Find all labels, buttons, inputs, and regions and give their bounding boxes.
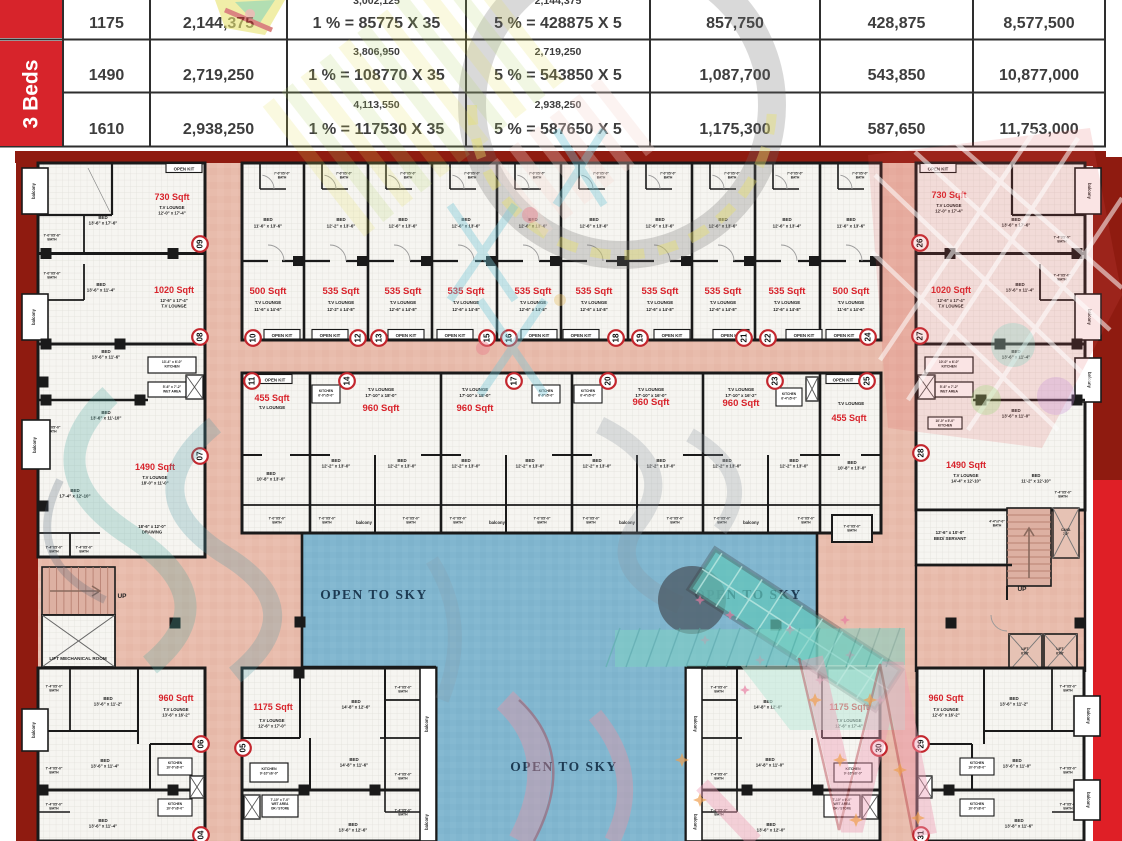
svg-text:535 Sqft: 535 Sqft [323, 286, 361, 297]
svg-text:04: 04 [197, 830, 206, 839]
svg-text:T.V LOUNGE: T.V LOUNGE [142, 475, 167, 480]
svg-text:18'-0" x 11'-0": 18'-0" x 11'-0" [141, 480, 168, 485]
svg-text:960 Sqft: 960 Sqft [723, 398, 761, 409]
svg-text:KITCHEN: KITCHEN [970, 761, 985, 765]
svg-text:T.V LOUNGE: T.V LOUNGE [163, 707, 188, 712]
svg-text:BATH: BATH [49, 770, 59, 774]
svg-text:24: 24 [864, 332, 873, 341]
svg-text:balcony: balcony [32, 436, 37, 452]
svg-text:BATH: BATH [272, 520, 282, 524]
svg-text:18'-6" x 12'-0": 18'-6" x 12'-0" [138, 524, 165, 529]
svg-text:BED: BED [789, 458, 798, 463]
svg-text:UP: UP [117, 593, 127, 600]
svg-text:17'-10" x 18'-0": 17'-10" x 18'-0" [365, 393, 396, 398]
svg-text:KITCHEN: KITCHEN [261, 767, 277, 771]
svg-text:T.V LOUNGE: T.V LOUNGE [259, 718, 284, 723]
svg-text:T.V LOUNGE: T.V LOUNGE [453, 300, 479, 305]
svg-text:BATH: BATH [398, 689, 408, 693]
svg-text:15: 15 [483, 333, 492, 342]
svg-text:T.V LOUNGE: T.V LOUNGE [328, 300, 354, 305]
svg-text:WET AREA: WET AREA [163, 390, 182, 394]
svg-text:BED: BED [461, 458, 470, 463]
svg-text:balcony: balcony [693, 814, 698, 830]
svg-text:12'-2" x 13'-0": 12'-2" x 13'-0" [780, 463, 809, 468]
svg-text:BATH: BATH [79, 549, 89, 553]
svg-text:11'-6" x 14'-6": 11'-6" x 14'-6" [837, 307, 864, 312]
svg-text:6'X8': 6'X8' [1021, 651, 1029, 655]
svg-text:12'-6" x 10'-0": 12'-6" x 10'-0" [936, 530, 965, 535]
svg-text:13'-6" x 11'-6": 13'-6" x 11'-6" [92, 354, 120, 359]
svg-text:12'-6" x 13'-6": 12'-6" x 13'-6" [580, 223, 609, 228]
svg-text:960 Sqft: 960 Sqft [633, 397, 671, 408]
svg-text:balcony: balcony [693, 716, 698, 732]
svg-text:T.V LOUNGE: T.V LOUNGE [647, 300, 673, 305]
svg-text:balcony: balcony [1086, 708, 1091, 724]
svg-text:OPEN KIT: OPEN KIT [174, 166, 195, 171]
svg-text:BATH: BATH [791, 175, 800, 179]
svg-text:12'-6" x 14'-8": 12'-6" x 14'-8" [773, 307, 800, 312]
svg-text:OPEN KIT: OPEN KIT [396, 333, 417, 338]
svg-text:500 Sqft: 500 Sqft [250, 286, 288, 297]
svg-text:12'-2" x 13'-0": 12'-2" x 13'-0" [388, 463, 417, 468]
svg-text:12'-6" x 14'-8": 12'-6" x 14'-8" [646, 307, 673, 312]
svg-text:05: 05 [239, 743, 248, 752]
svg-text:T.V LOUNGE: T.V LOUNGE [161, 303, 186, 308]
svg-text:BED: BED [847, 460, 856, 465]
svg-text:7-0": 7-0" [1063, 532, 1070, 536]
svg-text:BATH: BATH [856, 175, 865, 179]
svg-text:BED: BED [592, 458, 601, 463]
svg-text:12'-6" x 14'-8": 12'-6" x 14'-8" [709, 307, 736, 312]
svg-text:6'X8': 6'X8' [1056, 651, 1064, 655]
svg-text:BED: BED [336, 217, 345, 222]
svg-text:BED: BED [351, 699, 360, 704]
svg-text:12'-6" x 14'-8": 12'-6" x 14'-8" [452, 307, 479, 312]
svg-text:17'-10" x 18'-0": 17'-10" x 18'-0" [459, 393, 490, 398]
svg-text:BED: BED [655, 217, 664, 222]
svg-text:T.V LOUNGE: T.V LOUNGE [259, 405, 285, 410]
svg-text:UP: UP [1017, 586, 1027, 593]
svg-text:455 Sqft: 455 Sqft [254, 393, 289, 403]
svg-text:LIFT MECHANICAL ROOM: LIFT MECHANICAL ROOM [49, 656, 107, 661]
svg-text:KITCHEN: KITCHEN [581, 389, 596, 393]
svg-text:BED: BED [397, 458, 406, 463]
svg-text:13'-6" x 11'-4": 13'-6" x 11'-4" [87, 287, 115, 292]
svg-text:BATH: BATH [847, 528, 857, 532]
svg-text:12'-2" x 13'-0": 12'-2" x 13'-0" [583, 463, 612, 468]
svg-text:T.V LOUNGE: T.V LOUNGE [581, 300, 607, 305]
svg-text:BATH: BATH [714, 776, 724, 780]
svg-text:06: 06 [197, 739, 206, 748]
svg-text:BATH: BATH [1063, 806, 1073, 810]
svg-text:T.V LOUNGE: T.V LOUNGE [933, 707, 958, 712]
svg-text:KITCHEN: KITCHEN [319, 389, 334, 393]
svg-text:BED: BED [98, 215, 107, 220]
svg-text:12'-2" x 13'-6": 12'-2" x 13'-6" [327, 223, 356, 228]
svg-text:BED: BED [263, 217, 272, 222]
svg-text:BATH: BATH [453, 520, 463, 524]
svg-text:BATH: BATH [322, 520, 332, 524]
svg-text:08: 08 [196, 332, 205, 341]
svg-text:730 Sqft: 730 Sqft [154, 192, 189, 202]
svg-text:BED/ SERVANT: BED/ SERVANT [934, 536, 967, 541]
svg-text:500 Sqft: 500 Sqft [833, 286, 871, 297]
svg-text:balcony: balcony [31, 182, 36, 198]
svg-text:OPEN KIT: OPEN KIT [571, 333, 592, 338]
svg-text:BED: BED [266, 471, 275, 476]
svg-text:T.V LOUNGE: T.V LOUNGE [255, 300, 281, 305]
svg-text:6'-4"x5'-0": 6'-4"x5'-0" [580, 393, 596, 397]
svg-text:12'-6" x 13'-4": 12'-6" x 13'-4" [773, 223, 802, 228]
svg-text:13'-6" x 11'-4": 13'-6" x 11'-4" [89, 823, 117, 828]
svg-text:14: 14 [343, 376, 352, 385]
svg-text:LIFT: LIFT [1056, 647, 1064, 651]
svg-text:13'-6" x 11'-2": 13'-6" x 11'-2" [1000, 701, 1028, 706]
svg-text:12: 12 [354, 333, 363, 342]
svg-text:11'-6" x 13'-6": 11'-6" x 13'-6" [254, 223, 282, 228]
svg-text:11'-6" x 14'-6": 11'-6" x 14'-6" [254, 307, 281, 312]
svg-text:1020 Sqft: 1020 Sqft [154, 285, 194, 295]
svg-text:1175 Sqft: 1175 Sqft [253, 702, 293, 712]
svg-text:BATH: BATH [1063, 688, 1073, 692]
svg-text:18: 18 [612, 333, 621, 342]
svg-text:OPEN KIT: OPEN KIT [272, 333, 293, 338]
svg-text:13'-4" x 6'-0": 13'-4" x 6'-0" [162, 360, 183, 364]
svg-text:BATH: BATH [670, 520, 680, 524]
svg-text:T.V LOUNGE: T.V LOUNGE [390, 300, 416, 305]
svg-text:1490 Sqft: 1490 Sqft [946, 460, 986, 470]
svg-text:T.V LOUNGE: T.V LOUNGE [159, 205, 184, 210]
svg-text:10'-0"x6'-0": 10'-0"x6'-0" [166, 806, 184, 810]
svg-text:BED: BED [331, 458, 340, 463]
svg-text:OPEN KIT: OPEN KIT [833, 377, 854, 382]
svg-text:BATH: BATH [714, 689, 724, 693]
svg-text:balcony: balcony [489, 520, 505, 525]
svg-text:13'-6" x 11'-4": 13'-6" x 11'-4" [91, 763, 119, 768]
svg-text:KITCHEN: KITCHEN [168, 802, 183, 806]
svg-text:14'-8" x 11'-6": 14'-8" x 11'-6" [340, 762, 368, 767]
svg-text:12'-6" x 17'-4": 12'-6" x 17'-4" [160, 298, 187, 303]
svg-text:BED: BED [765, 757, 774, 762]
svg-text:OPEN KIT: OPEN KIT [529, 333, 550, 338]
svg-text:960 Sqft: 960 Sqft [363, 403, 401, 414]
svg-text:960 Sqft: 960 Sqft [158, 693, 193, 703]
svg-text:T.V LOUNGE: T.V LOUNGE [638, 387, 664, 392]
svg-text:6'-0"x5'-0": 6'-0"x5'-0" [318, 393, 334, 397]
svg-text:BED: BED [1032, 473, 1041, 478]
svg-text:BATH: BATH [49, 806, 59, 810]
svg-text:LIFT: LIFT [1021, 647, 1029, 651]
svg-text:BED: BED [589, 217, 598, 222]
svg-text:13'-6" x 11'-2": 13'-6" x 11'-2" [94, 701, 122, 706]
svg-text:535 Sqft: 535 Sqft [642, 286, 680, 297]
svg-text:10'-0"x8'-0": 10'-0"x8'-0" [968, 806, 986, 810]
svg-text:13'-8" x 11'-6": 13'-8" x 11'-6" [1005, 823, 1033, 828]
svg-text:T.V LOUNGE: T.V LOUNGE [838, 300, 864, 305]
svg-text:13'-6" x 12'-6": 13'-6" x 12'-6" [339, 827, 368, 832]
svg-text:T.V LOUNGE: T.V LOUNGE [368, 387, 394, 392]
svg-text:13'-6" x 17'-6": 13'-6" x 17'-6" [89, 220, 118, 225]
svg-text:BATH: BATH [537, 520, 547, 524]
svg-text:12'-6" x 13'-6": 12'-6" x 13'-6" [389, 223, 418, 228]
svg-text:12'-2" x 13'-0": 12'-2" x 13'-0" [322, 463, 351, 468]
svg-text:balcony: balcony [356, 520, 372, 525]
svg-text:balcony: balcony [424, 813, 429, 829]
svg-text:T.V LOUNGE: T.V LOUNGE [710, 300, 736, 305]
svg-text:14'-8" x 12'-6": 14'-8" x 12'-6" [342, 704, 371, 709]
svg-text:17: 17 [510, 376, 519, 385]
svg-text:BATH: BATH [728, 175, 737, 179]
svg-text:KITCHEN: KITCHEN [164, 365, 180, 369]
svg-text:BED: BED [398, 217, 407, 222]
svg-text:BATH: BATH [406, 520, 416, 524]
svg-text:BED: BED [96, 282, 105, 287]
svg-text:BED: BED [101, 349, 110, 354]
svg-text:13: 13 [375, 333, 384, 342]
svg-text:OPEN KIT: OPEN KIT [320, 333, 341, 338]
svg-text:OPEN KIT: OPEN KIT [834, 333, 855, 338]
svg-text:14'-4" x 12'-10": 14'-4" x 12'-10" [951, 478, 981, 483]
svg-text:balcony: balcony [31, 721, 36, 737]
svg-text:25: 25 [863, 376, 872, 385]
svg-text:BED: BED [782, 217, 791, 222]
svg-text:14'-8" x 11'-0": 14'-8" x 11'-0" [756, 762, 784, 767]
svg-text:balcony: balcony [1086, 792, 1091, 808]
svg-text:BED: BED [349, 757, 358, 762]
svg-text:OPEN KIT: OPEN KIT [794, 333, 815, 338]
svg-text:12'-6" x 13'-6": 12'-6" x 13'-6" [646, 223, 675, 228]
svg-text:960 Sqft: 960 Sqft [928, 693, 963, 703]
svg-text:BATH: BATH [993, 523, 1002, 527]
svg-text:BATH: BATH [398, 812, 408, 816]
svg-text:BED: BED [656, 458, 665, 463]
svg-text:535 Sqft: 535 Sqft [385, 286, 423, 297]
svg-text:28: 28 [917, 448, 926, 457]
svg-text:BATH: BATH [1063, 770, 1073, 774]
svg-text:BED: BED [100, 758, 109, 763]
svg-text:OPEN KIT: OPEN KIT [265, 377, 286, 382]
svg-text:11'-2" x 12'-10": 11'-2" x 12'-10" [1021, 478, 1050, 483]
svg-text:535 Sqft: 535 Sqft [705, 286, 743, 297]
svg-text:10'-8" x 13'-0": 10'-8" x 13'-0" [257, 476, 286, 481]
svg-text:535 Sqft: 535 Sqft [576, 286, 614, 297]
svg-text:T.V LOUNGE: T.V LOUNGE [774, 300, 800, 305]
svg-text:11'-6" x 13'-6": 11'-6" x 13'-6" [837, 223, 865, 228]
svg-text:10'-8" x 13'-0": 10'-8" x 13'-0" [838, 465, 867, 470]
svg-text:BATH: BATH [49, 688, 59, 692]
svg-text:23: 23 [771, 376, 780, 385]
svg-text:12'-6" x 14'-8": 12'-6" x 14'-8" [580, 307, 607, 312]
svg-text:BED: BED [525, 458, 534, 463]
svg-text:BATH: BATH [1058, 494, 1068, 498]
svg-text:OPEN TO SKY: OPEN TO SKY [510, 759, 618, 774]
svg-text:BED: BED [1012, 758, 1021, 763]
svg-text:balcony: balcony [743, 520, 759, 525]
svg-text:13'-6" x 12'-0": 13'-6" x 12'-0" [757, 827, 786, 832]
svg-text:10'-0"x6'-0": 10'-0"x6'-0" [166, 765, 184, 769]
svg-text:T.V LOUNGE: T.V LOUNGE [953, 473, 978, 478]
svg-text:BATH: BATH [47, 237, 57, 241]
svg-text:21: 21 [740, 333, 749, 342]
svg-text:BATH: BATH [586, 520, 596, 524]
svg-text:BED: BED [846, 217, 855, 222]
svg-text:13'-6" x 11'-0": 13'-6" x 11'-0" [1003, 763, 1031, 768]
svg-text:KITCHEN: KITCHEN [782, 392, 797, 396]
svg-text:20: 20 [604, 376, 613, 385]
svg-text:535 Sqft: 535 Sqft [769, 286, 807, 297]
svg-text:BATH: BATH [664, 175, 673, 179]
svg-text:balcony: balcony [31, 308, 36, 324]
svg-text:11: 11 [248, 376, 257, 385]
svg-text:BATH: BATH [47, 275, 57, 279]
svg-text:BED: BED [103, 696, 112, 701]
svg-text:960 Sqft: 960 Sqft [457, 403, 495, 414]
svg-text:BATH: BATH [398, 776, 408, 780]
svg-text:22: 22 [764, 333, 773, 342]
svg-text:10: 10 [249, 333, 258, 342]
svg-text:12'-2" x 13'-0": 12'-2" x 13'-0" [452, 463, 481, 468]
svg-text:09: 09 [196, 239, 205, 248]
svg-text:OPEN KIT: OPEN KIT [662, 333, 683, 338]
svg-text:BED: BED [1014, 818, 1023, 823]
svg-text:535 Sqft: 535 Sqft [515, 286, 553, 297]
svg-text:19: 19 [636, 333, 645, 342]
svg-text:OPEN TO SKY: OPEN TO SKY [320, 587, 428, 602]
svg-text:455 Sqft: 455 Sqft [831, 413, 866, 423]
svg-text:T.V LOUNGE: T.V LOUNGE [838, 401, 864, 406]
svg-text:12'-6" x 17'-0": 12'-6" x 17'-0" [258, 723, 285, 728]
svg-text:12'-0" x 17'-4": 12'-0" x 17'-4" [158, 210, 185, 215]
svg-text:T.V LOUNGE: T.V LOUNGE [728, 387, 754, 392]
svg-text:BATH: BATH [278, 175, 287, 179]
svg-text:OPEN KIT: OPEN KIT [445, 333, 466, 338]
svg-text:10'-0"x6'-0": 10'-0"x6'-0" [968, 765, 986, 769]
svg-text:BED: BED [348, 822, 357, 827]
svg-text:6'-4"x5'-0": 6'-4"x5'-0" [781, 396, 797, 400]
svg-text:12'-6" x 16'-2": 12'-6" x 16'-2" [932, 712, 959, 717]
svg-text:BED: BED [766, 822, 775, 827]
svg-text:KITCHEN: KITCHEN [168, 761, 183, 765]
svg-text:BED: BED [1009, 696, 1018, 701]
svg-text:BATH: BATH [801, 520, 811, 524]
svg-text:12'-2" x 13'-0": 12'-2" x 13'-0" [516, 463, 545, 468]
svg-text:12'-6" x 14'-8": 12'-6" x 14'-8" [389, 307, 416, 312]
svg-text:13'-6" x 16'-2": 13'-6" x 16'-2" [162, 712, 189, 717]
svg-text:OR / STORE: OR / STORE [271, 806, 289, 810]
svg-text:balcony: balcony [424, 715, 429, 731]
svg-text:5'-6" x 7'-2": 5'-6" x 7'-2" [163, 385, 182, 389]
svg-text:KITCHEN: KITCHEN [970, 802, 985, 806]
svg-text:BED: BED [98, 818, 107, 823]
svg-text:12'-2" x 14'-8": 12'-2" x 14'-8" [327, 307, 354, 312]
svg-text:9'-10"x6'-0": 9'-10"x6'-0" [260, 772, 279, 776]
